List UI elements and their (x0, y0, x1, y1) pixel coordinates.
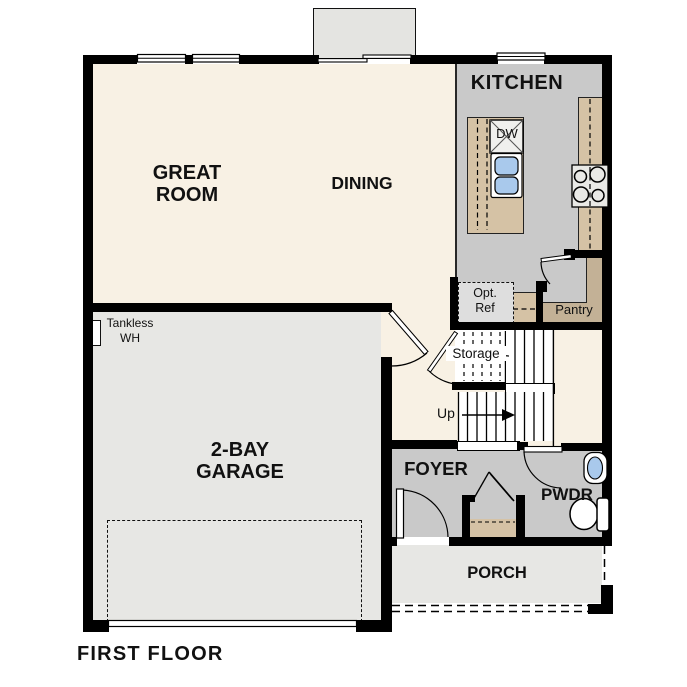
garage-overhead-door (109, 621, 357, 627)
kitchen-label: KITCHEN (462, 72, 572, 95)
pantry-door (541, 255, 572, 285)
porch-label: PORCH (458, 564, 536, 583)
front-door (397, 489, 449, 538)
powder-label: PWDR (536, 485, 598, 504)
foyer-label: FOYER (400, 459, 472, 480)
stairs-up-arrow (462, 409, 515, 421)
closet-door (473, 472, 514, 501)
dishwasher-label: DW (492, 127, 522, 142)
tankless-wh-label: Tankless WH (99, 316, 161, 346)
stair-treads-upper (515, 330, 544, 383)
great-room-label: GREAT ROOM (117, 162, 257, 206)
window-great-room-1 (138, 55, 186, 63)
window-kitchen (497, 53, 545, 60)
powder-door (524, 447, 562, 489)
opt-ref-label: Opt. Ref (458, 286, 512, 316)
powder-sink (584, 453, 607, 484)
sliding-door (318, 55, 411, 62)
dining-label: DINING (322, 174, 402, 194)
floor-plan: GREAT ROOM DINING KITCHEN 2-BAY GARAGE F… (0, 0, 687, 687)
garage-entry-door (389, 311, 428, 367)
window-great-room-2 (193, 55, 240, 63)
pantry-label: Pantry (548, 303, 600, 318)
garage-label: 2-BAY GARAGE (160, 440, 320, 483)
kitchen-sink (491, 154, 522, 198)
storage-label: Storage (446, 346, 506, 361)
plan-title: FIRST FLOOR (77, 643, 317, 666)
stair-treads-lower (459, 392, 544, 441)
stairs-up-label: Up (432, 406, 460, 422)
